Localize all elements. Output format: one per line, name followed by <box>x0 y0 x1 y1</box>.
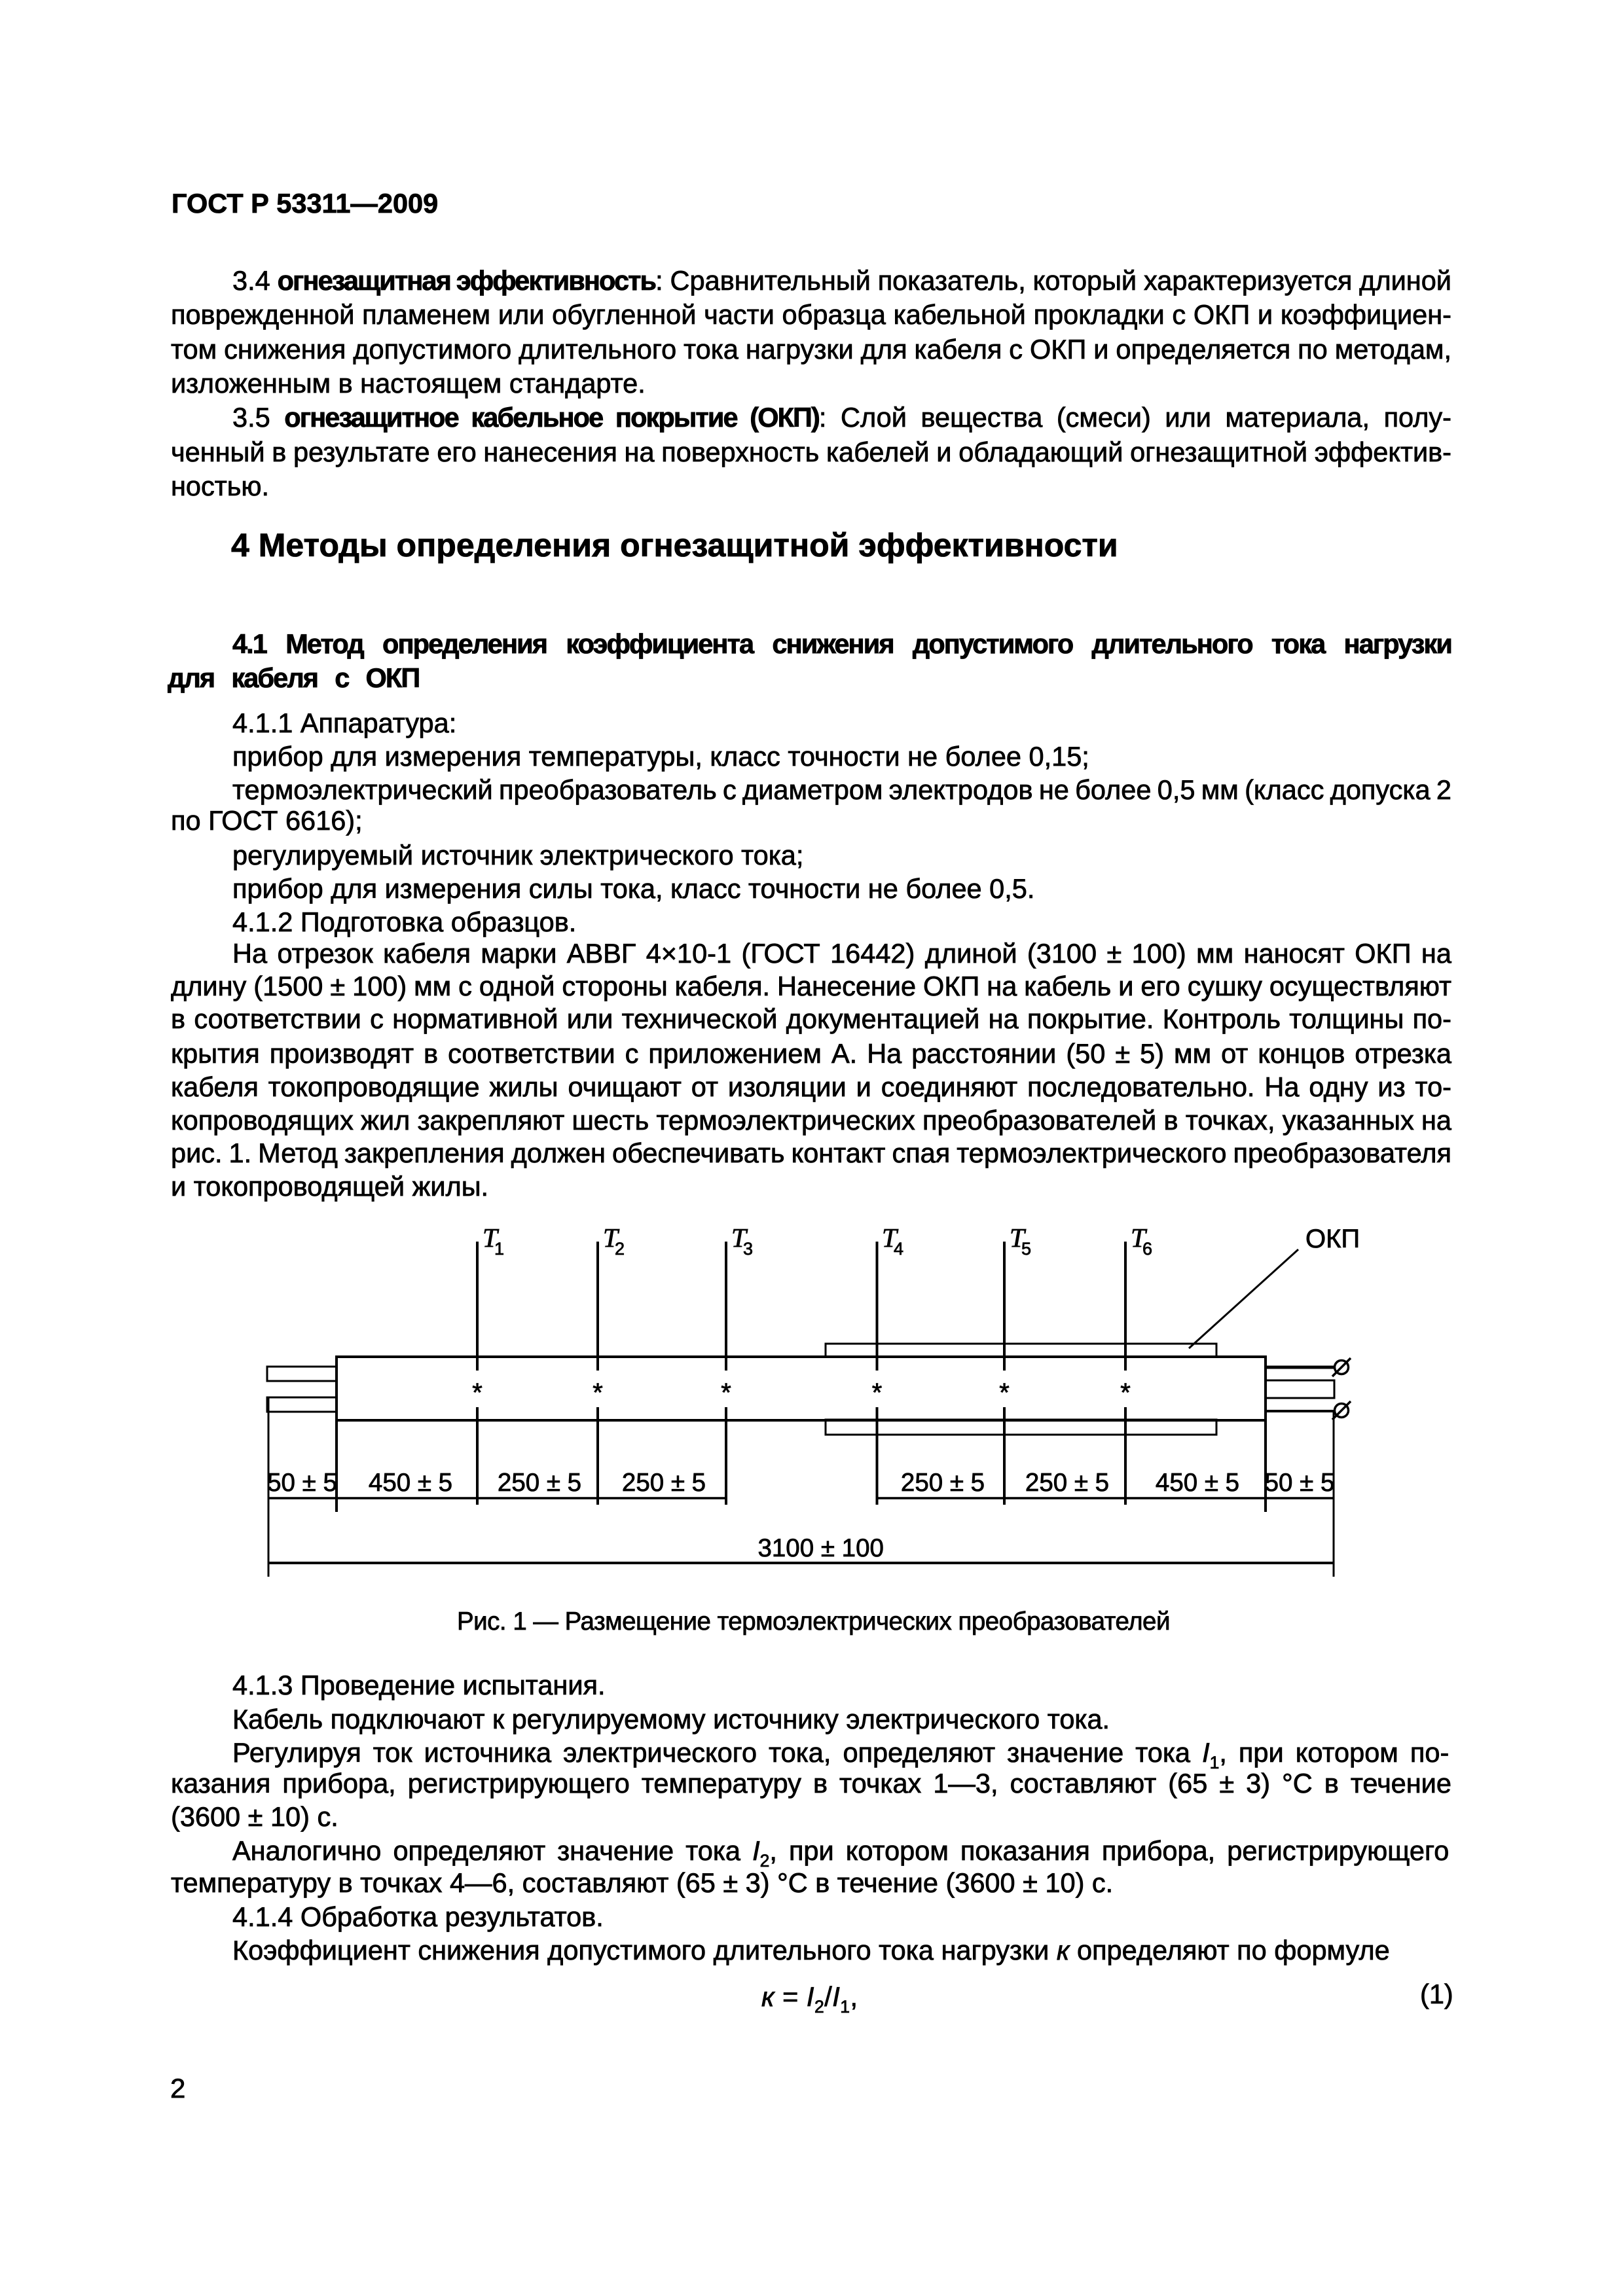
svg-text:4: 4 <box>894 1239 903 1259</box>
svg-text:*: * <box>999 1378 1010 1407</box>
svg-text:6: 6 <box>1142 1239 1152 1259</box>
svg-text:5: 5 <box>1021 1239 1031 1259</box>
svg-text:450 ± 5: 450 ± 5 <box>369 1469 452 1497</box>
svg-text:250 ± 5: 250 ± 5 <box>901 1469 985 1497</box>
svg-text:*: * <box>1120 1378 1131 1407</box>
svg-text:*: * <box>721 1378 731 1407</box>
svg-text:250 ± 5: 250 ± 5 <box>622 1469 706 1497</box>
svg-text:50 ± 5: 50 ± 5 <box>1265 1469 1335 1497</box>
svg-text:2: 2 <box>615 1239 625 1259</box>
svg-text:250 ± 5: 250 ± 5 <box>498 1469 581 1497</box>
svg-text:450 ± 5: 450 ± 5 <box>1156 1469 1239 1497</box>
svg-text:3: 3 <box>743 1239 753 1259</box>
svg-text:50 ± 5: 50 ± 5 <box>267 1469 337 1497</box>
svg-text:3100 ± 100: 3100 ± 100 <box>757 1534 883 1562</box>
svg-text:250 ± 5: 250 ± 5 <box>1025 1469 1109 1497</box>
svg-text:*: * <box>872 1378 883 1407</box>
svg-text:ОКП: ОКП <box>1305 1225 1360 1253</box>
svg-text:*: * <box>472 1378 483 1407</box>
svg-text:*: * <box>593 1378 603 1407</box>
svg-text:1: 1 <box>494 1239 504 1259</box>
